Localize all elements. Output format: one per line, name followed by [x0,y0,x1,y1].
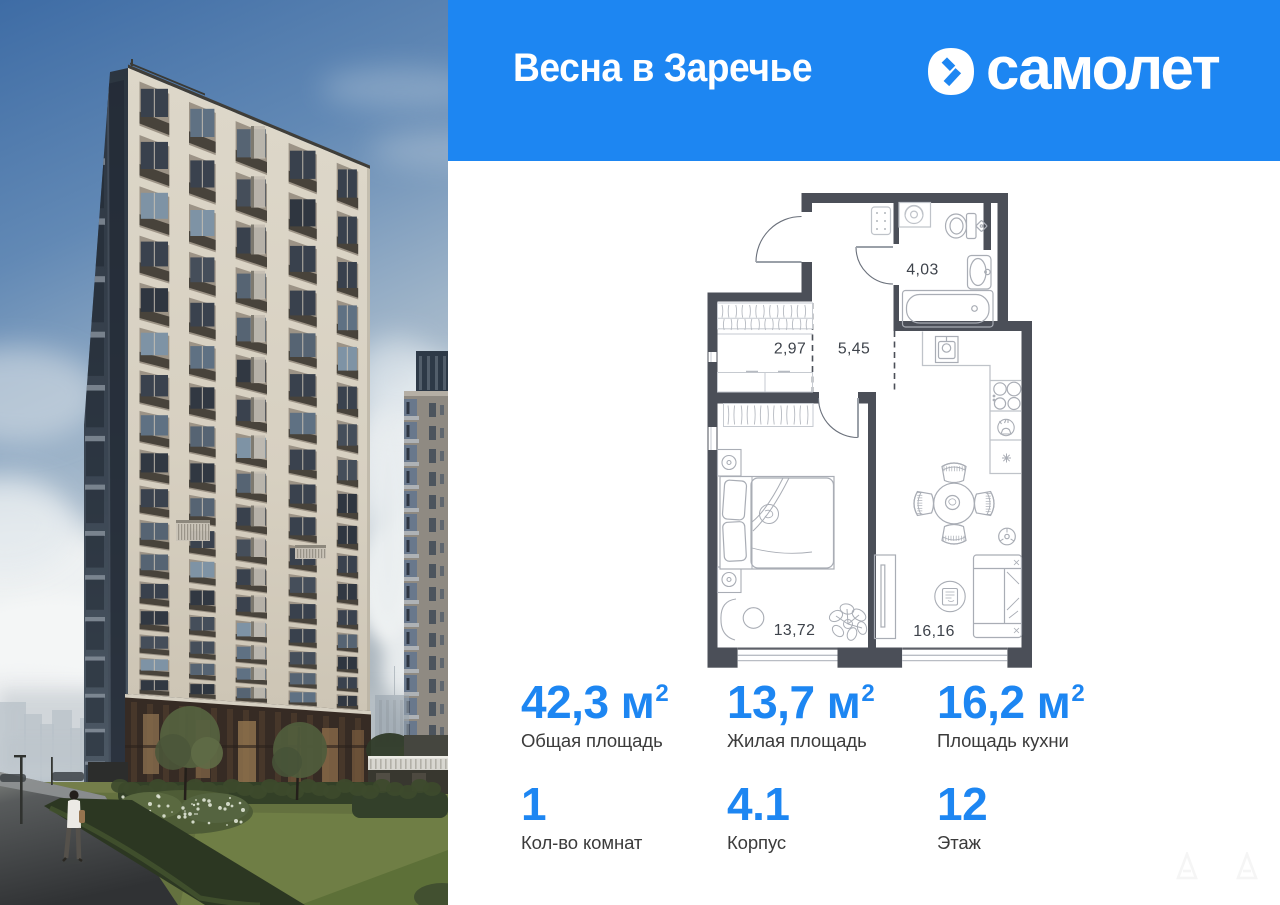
svg-text:4,03: 4,03 [906,262,938,279]
svg-text:2,97: 2,97 [774,341,806,358]
svg-text:16,16: 16,16 [913,623,955,640]
svg-text:5,45: 5,45 [838,341,870,358]
svg-text:13,72: 13,72 [774,622,816,639]
